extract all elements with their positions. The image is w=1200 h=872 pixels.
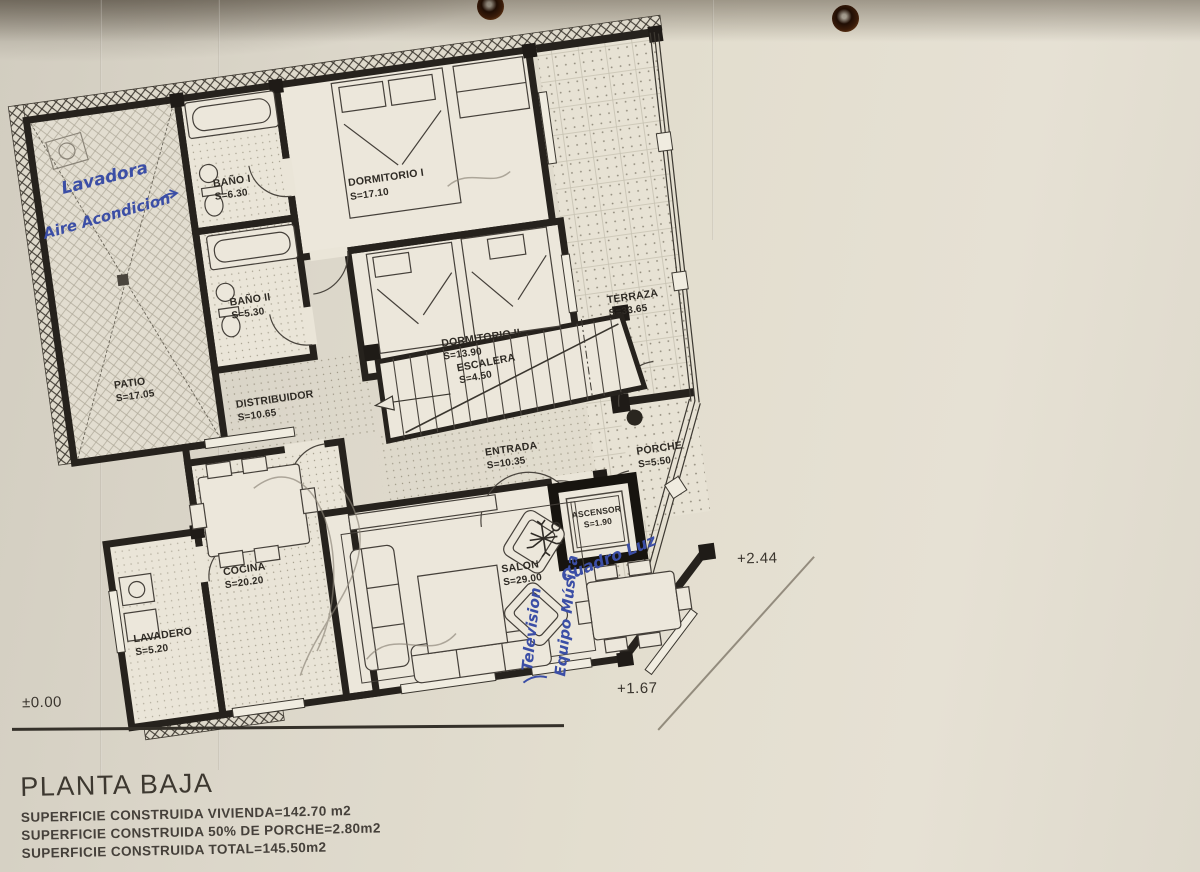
level-mark-terrace: +2.44: [737, 550, 778, 568]
plan-title: PLANTA BAJA: [20, 764, 380, 803]
level-mark-porch: +1.67: [617, 680, 658, 698]
room-label-banio1: BAÑO IS=6.30: [212, 172, 253, 203]
floor-plan-drawing: PATIOS=17.05 BAÑO IS=6.30 BAÑO IIS=5.30 …: [0, 0, 958, 825]
level-mark-ground: ±0.00: [22, 694, 62, 712]
floor-plan-photo: PATIOS=17.05 BAÑO IS=6.30 BAÑO IIS=5.30 …: [0, 0, 1200, 872]
title-block: PLANTA BAJA SUPERFICIE CONSTRUIDA VIVIEN…: [20, 764, 381, 863]
